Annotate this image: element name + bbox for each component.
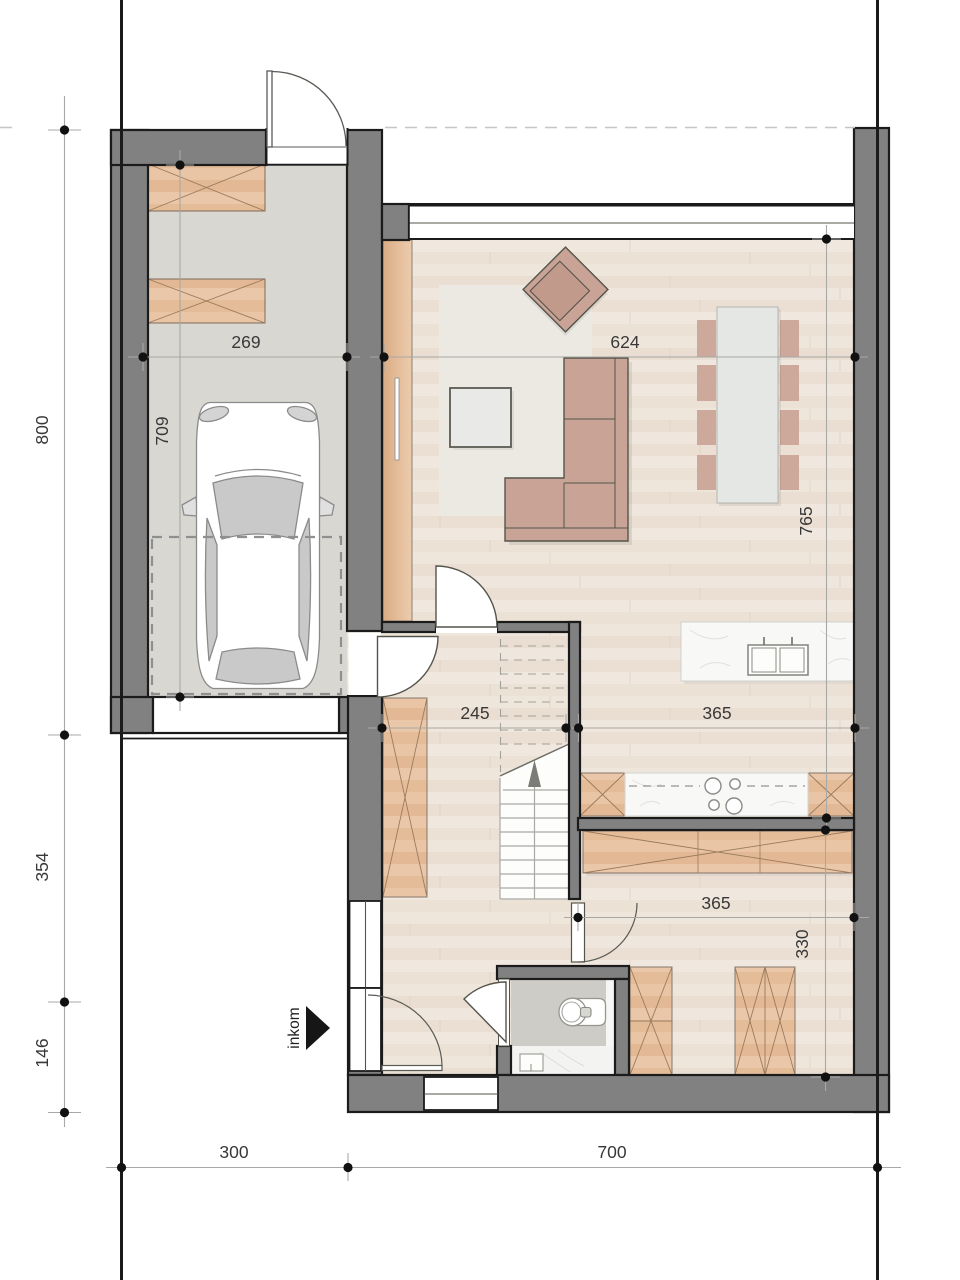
svg-text:624: 624 xyxy=(610,332,639,352)
svg-text:inkom: inkom xyxy=(286,1007,303,1048)
svg-text:365: 365 xyxy=(702,703,731,723)
svg-text:300: 300 xyxy=(219,1142,248,1162)
svg-text:354: 354 xyxy=(32,852,52,881)
svg-text:245: 245 xyxy=(460,703,489,723)
svg-text:700: 700 xyxy=(597,1142,626,1162)
svg-text:709: 709 xyxy=(152,416,172,445)
svg-text:765: 765 xyxy=(796,506,816,535)
svg-text:800: 800 xyxy=(32,415,52,444)
svg-text:269: 269 xyxy=(231,332,260,352)
svg-text:146: 146 xyxy=(32,1038,52,1067)
svg-text:330: 330 xyxy=(792,929,812,958)
svg-text:365: 365 xyxy=(701,893,730,913)
